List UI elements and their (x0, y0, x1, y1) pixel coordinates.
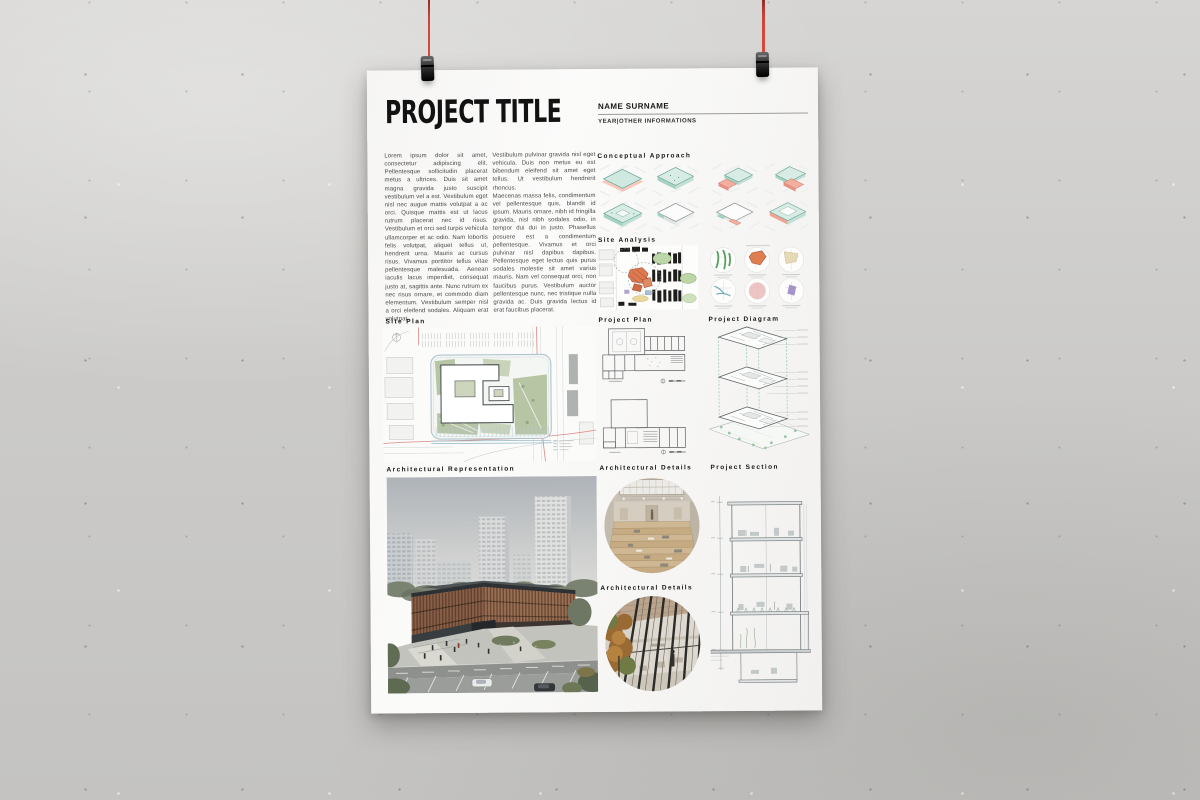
author-meta: YEAR|OTHER INFORMATIONS (598, 117, 808, 124)
project-diagram-drawing (709, 325, 810, 460)
project-section-drawing (710, 474, 812, 691)
heading-architectural-details-2: Architectural Details (600, 584, 693, 592)
heading-project-plan: Project Plan (598, 317, 652, 324)
poster-sheet: PROJECT TITLE NAME SURNAME YEAR|OTHER IN… (367, 67, 822, 713)
architectural-representation-render (387, 476, 599, 693)
site-plan-drawing (383, 326, 597, 462)
heading-conceptual-approach: Conceptual Approach (597, 152, 691, 160)
site-analysis-map (598, 245, 698, 310)
project-plan-ground-floor (601, 326, 693, 385)
binder-clip-left (421, 56, 435, 81)
poster-title: PROJECT TITLE (385, 96, 562, 129)
intro-column-1: Lorem ipsum dolor sit amet, consectetur … (384, 152, 488, 324)
hanging-string-right (762, 0, 765, 55)
heading-site-analysis: Site Analysis (598, 237, 656, 244)
intro-column-2: Vestibulum pulvinar gravida nisl eget ve… (492, 151, 596, 323)
heading-project-section: Project Section (711, 464, 779, 471)
site-analysis-circles (706, 243, 809, 310)
wall-background: PROJECT TITLE NAME SURNAME YEAR|OTHER IN… (0, 0, 1200, 800)
intro-text: Lorem ipsum dolor sit amet, consectetur … (384, 151, 597, 324)
heading-project-diagram: Project Diagram (708, 316, 779, 323)
heading-architectural-details-1: Architectural Details (600, 464, 693, 472)
hanging-string-left (428, 0, 431, 59)
author-divider (598, 113, 808, 115)
architectural-detail-photo-2 (604, 595, 701, 692)
author-name: NAME SURNAME (598, 101, 808, 111)
author-block: NAME SURNAME YEAR|OTHER INFORMATIONS (598, 101, 808, 125)
heading-site-plan: Site Plan (385, 318, 425, 325)
conceptual-approach-diagrams (597, 161, 808, 232)
binder-clip-right (755, 52, 768, 77)
project-plan-first-floor (601, 397, 693, 456)
architectural-detail-photo-1 (604, 477, 701, 574)
heading-architectural-representation: Architectural Representation (387, 466, 515, 474)
